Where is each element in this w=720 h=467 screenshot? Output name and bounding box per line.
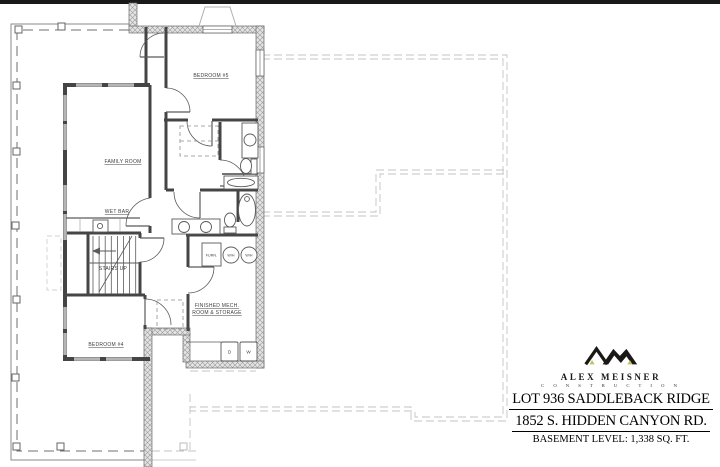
window-well — [199, 7, 236, 26]
label-water-heater-2: W/H — [245, 254, 253, 258]
bath1-toilet — [241, 159, 258, 175]
label-bedroom5: BEDROOM #5 — [193, 73, 228, 79]
door-stair-hall — [140, 238, 164, 262]
label-bedroom4: BEDROOM #4 — [88, 342, 123, 348]
label-washer: W — [246, 350, 251, 355]
label-family-room: FAMILY ROOM — [104, 159, 141, 165]
label-mech-room-2: ROOM & STORAGE — [192, 310, 242, 316]
door-family-room — [126, 198, 150, 226]
title-lot-text: LOT 936 SADDLEBACK RIDGE — [509, 391, 713, 410]
alex-meisner-logo-icon — [582, 344, 640, 366]
label-water-heater-1: W/H — [227, 254, 235, 258]
stairs — [88, 236, 140, 294]
door-closet-hall — [187, 121, 212, 146]
title-address-line: 1852 S. HIDDEN CANYON RD. — [505, 413, 717, 432]
bath1-tub — [224, 176, 258, 189]
door-bath2 — [174, 192, 200, 218]
upper-level-dashed-outline — [47, 55, 507, 451]
bath2-tub — [239, 194, 256, 226]
title-address-text: 1852 S. HIDDEN CANYON RD. — [512, 413, 710, 432]
label-mech-room-1: FINISHED MECH. — [195, 303, 239, 309]
wet-bar-counter — [66, 218, 140, 232]
bath1-vanity — [242, 123, 258, 158]
fixtures — [66, 123, 258, 361]
door-bedroom4 — [145, 299, 171, 325]
basement-floor-plan-sheet: { "plan": { "rooms": { "bedroom5": "BEDR… — [0, 0, 720, 467]
label-wet-bar: WET BAR — [105, 209, 130, 215]
stair-break-line — [99, 236, 132, 292]
door-bedroom5 — [166, 88, 190, 112]
title-block: ALEX MEISNER C O N S T R U C T I O N LOT… — [505, 344, 717, 445]
bath2-toilet — [224, 213, 236, 233]
label-furnace: FURN. — [206, 254, 217, 258]
door-entry-closet — [140, 33, 164, 57]
bath2-vanity — [172, 219, 220, 234]
label-stairs-up: STAIRS UP — [99, 266, 128, 272]
company-name: ALEX MEISNER — [505, 372, 717, 382]
title-lot-line: LOT 936 SADDLEBACK RIDGE — [505, 391, 717, 410]
door-mech-room — [188, 267, 214, 293]
company-subtitle: C O N S T R U C T I O N — [505, 383, 717, 388]
title-level-area: BASEMENT LEVEL: 1,338 SQ. FT. — [505, 434, 717, 445]
deck-outline — [11, 23, 196, 460]
